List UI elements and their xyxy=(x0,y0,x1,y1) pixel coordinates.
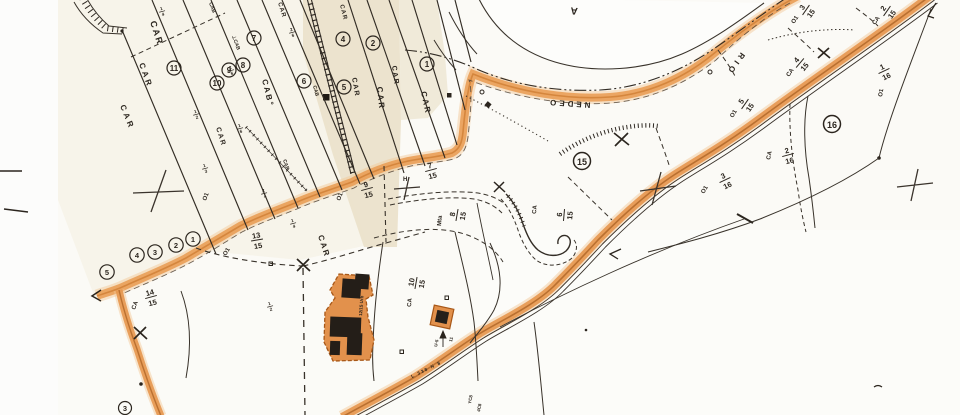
svg-text:H: H xyxy=(403,177,407,183)
svg-text:15: 15 xyxy=(253,241,263,251)
svg-text:5: 5 xyxy=(105,268,109,277)
svg-text:15: 15 xyxy=(458,211,468,221)
svg-text:CA: CA xyxy=(407,297,414,307)
svg-text:15: 15 xyxy=(565,211,575,220)
svg-text:11: 11 xyxy=(170,64,179,73)
svg-text:10: 10 xyxy=(213,79,222,88)
svg-text:1: 1 xyxy=(425,60,430,69)
svg-text:4: 4 xyxy=(341,35,346,44)
svg-text:A: A xyxy=(570,4,578,16)
svg-text:2: 2 xyxy=(174,241,178,250)
svg-text:5: 5 xyxy=(342,83,347,92)
svg-text:7: 7 xyxy=(252,34,257,43)
svg-text:6: 6 xyxy=(302,77,307,86)
svg-text:3: 3 xyxy=(153,248,157,257)
svg-text:Mta: Mta xyxy=(437,215,444,226)
svg-text:15: 15 xyxy=(417,279,427,289)
svg-text:6: 6 xyxy=(555,212,564,217)
svg-text:15: 15 xyxy=(577,157,587,167)
svg-text:3: 3 xyxy=(123,404,127,413)
svg-text:16: 16 xyxy=(827,120,837,130)
svg-text:CA: CA xyxy=(532,204,539,214)
svg-text:2: 2 xyxy=(371,39,376,48)
svg-text:1: 1 xyxy=(191,235,195,244)
svg-text:8: 8 xyxy=(241,61,246,70)
